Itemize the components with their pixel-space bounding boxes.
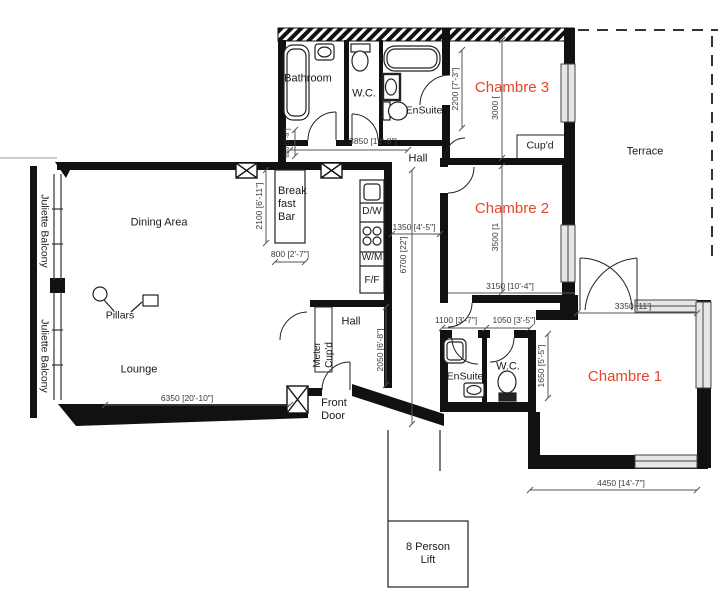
label-wc-top: W.C. (352, 87, 376, 100)
label-hall-top: Hall (409, 152, 428, 165)
pillar-symbols (93, 287, 158, 312)
hob-ring (363, 237, 371, 245)
label-ensuite-bottom: EnSuite (447, 371, 484, 384)
label-wc-bottom: W.C. (496, 360, 520, 373)
label-chambre3: Chambre 3 (475, 79, 549, 97)
dim-chambre1-top-width: 3350 [11'] (615, 301, 651, 311)
kitchen-sink (364, 184, 380, 200)
dim-ensuite-height: 2200 [7'-3"] (450, 68, 460, 111)
label-juliette-balcony-upper: Juliette Balcony (38, 194, 51, 268)
dim-wc2-width: 1050 [3'-5"] (493, 315, 536, 325)
dim-wc-block-height: 1650 [5'-5"] (536, 345, 546, 388)
dim-breakfast-bar-width: 800 [2'-7"] (271, 249, 309, 259)
label-washing-machine: W/M (362, 252, 383, 264)
label-chambre2: Chambre 2 (475, 200, 549, 218)
wc2-toilet-bowl (498, 371, 516, 393)
label-cupd: Cup'd (526, 140, 553, 153)
label-juliette-balcony-lower: Juliette Balcony (38, 319, 51, 393)
dim-hall-mid-height: 2050 [6'-8"] (375, 329, 385, 372)
dim-hall-length: 6700 [22'] (398, 236, 408, 273)
label-hall-mid: Hall (342, 315, 361, 328)
label-lounge: Lounge (121, 363, 158, 376)
dim-hall-nook: 850 [2'-9"] (284, 128, 292, 157)
hob-ring (373, 227, 381, 235)
label-dishwasher: D/W (362, 206, 381, 218)
terrace-boundary (578, 30, 718, 256)
hob-ring (373, 237, 381, 245)
dim-chambre2-height: 3500 [1 (490, 223, 500, 251)
label-bathroom: Bathroom (284, 72, 332, 85)
windows (561, 64, 711, 468)
label-pillars: Pillars (106, 310, 135, 323)
dim-chambre3-width: 3000 [ (490, 96, 500, 120)
dim-lounge-width: 6350 [20'-10"] (161, 393, 213, 403)
round-pillar (93, 287, 107, 301)
hatched-top-wall (278, 28, 574, 41)
dim-chambre2-width: 3150 [10'-4"] (486, 281, 534, 291)
label-ensuite-top: EnSuite (406, 105, 443, 118)
label-breakfast-bar: Break fast Bar (278, 185, 307, 225)
dim-breakfast-bar-length: 2100 [6'-11"] (254, 182, 264, 229)
label-front-door: Front Door (321, 397, 347, 423)
square-pillar (143, 295, 158, 306)
label-fridge-freezer: F/F (365, 275, 380, 287)
label-terrace: Terrace (627, 145, 664, 158)
label-lift: 8 Person Lift (406, 541, 450, 567)
label-chambre1: Chambre 1 (588, 368, 662, 386)
label-meter-cupd: Meter Cup'd (312, 342, 336, 368)
toilet-bowl (352, 51, 368, 71)
dim-chambre1-bottom-width: 4450 [14'-7"] (597, 478, 645, 488)
label-dining-area: Dining Area (131, 216, 188, 229)
dim-ensuite2-width: 1100 [3'-7"] (435, 315, 477, 325)
dim-hall-width: 1350 [4'-5"] (393, 222, 436, 232)
floor-plan: Bathroom W.C. EnSuite Chambre 3 Cup'd Te… (0, 0, 722, 616)
wc2-toilet-cistern (499, 393, 516, 401)
hob-ring (363, 227, 371, 235)
dim-bath-block-width: 3850 [12'-8"] (349, 136, 397, 146)
